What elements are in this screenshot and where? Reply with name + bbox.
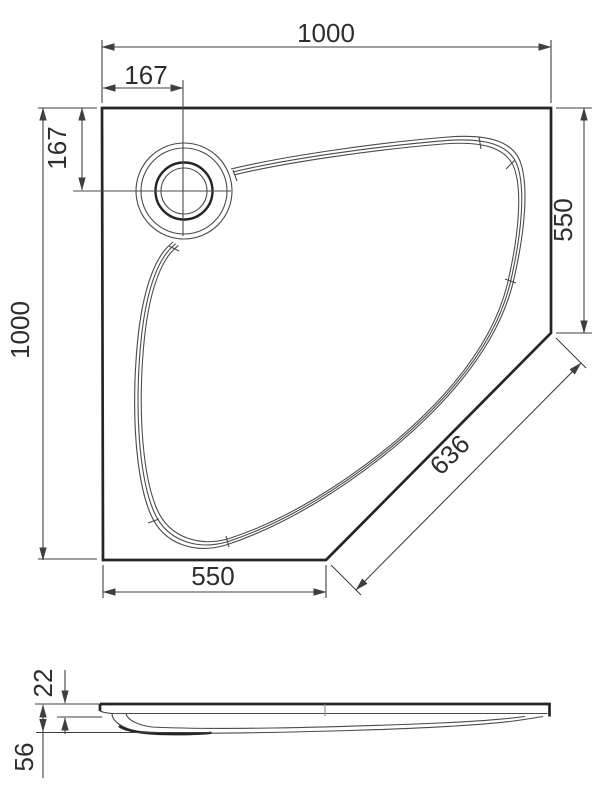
profile-left-step — [100, 711, 112, 714]
side-view: 22 56 — [9, 669, 550, 778]
dim-top-width: 1000 — [102, 18, 551, 103]
drain — [73, 80, 232, 239]
dim-bottom-side-label: 550 — [191, 561, 234, 591]
side-profile — [100, 704, 550, 734]
dim-top-width-label: 1000 — [297, 18, 355, 48]
dim-left-height: 1000 — [5, 108, 97, 560]
dim-left-height-label: 1000 — [5, 301, 35, 359]
plan-view: 1000 167 167 1000 550 — [5, 18, 592, 598]
dim-right-side-label: 550 — [548, 198, 578, 241]
dim-drain-offset-left: 167 — [38, 108, 97, 190]
dim-profile-height-label: 56 — [9, 743, 39, 772]
dim-drain-offset-left-label: 167 — [42, 126, 72, 169]
dim-profile-height: 56 — [9, 705, 212, 778]
dim-profile-rim-label: 22 — [28, 669, 58, 698]
dim-profile-rim: 22 — [28, 669, 102, 734]
profile-bowl-outer — [112, 714, 543, 734]
drawing-page: 1000 167 167 1000 550 — [0, 0, 606, 800]
dim-drain-offset-top: 167 — [103, 60, 183, 90]
technical-drawing: 1000 167 167 1000 550 — [0, 0, 606, 800]
dim-right-side: 550 — [548, 108, 592, 333]
dim-drain-offset-top-label: 167 — [124, 60, 167, 90]
dim-bottom-side: 550 — [103, 561, 326, 598]
